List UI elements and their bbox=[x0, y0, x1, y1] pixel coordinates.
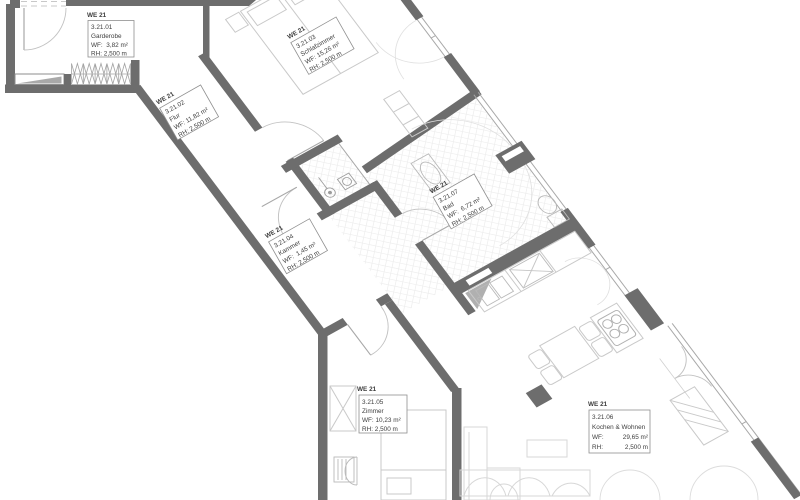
svg-text:WF: 3,82 m²: WF: 3,82 m² bbox=[91, 42, 128, 49]
svg-text:29,65 m²: 29,65 m² bbox=[623, 434, 648, 441]
svg-text:Kochen & Wohnen: Kochen & Wohnen bbox=[592, 424, 646, 431]
svg-text:Garderobe: Garderobe bbox=[91, 33, 122, 40]
svg-text:RH: 2,500 m: RH: 2,500 m bbox=[362, 426, 398, 433]
svg-text:3.21.06: 3.21.06 bbox=[592, 414, 614, 421]
svg-text:3.21.05: 3.21.05 bbox=[362, 399, 384, 406]
svg-text:WE 21: WE 21 bbox=[357, 386, 377, 393]
svg-text:RH:: RH: bbox=[592, 444, 603, 451]
svg-text:WE 21: WE 21 bbox=[87, 12, 107, 19]
svg-text:Zimmer: Zimmer bbox=[362, 408, 385, 415]
svg-text:RH: 2,500 m: RH: 2,500 m bbox=[91, 51, 127, 58]
svg-text:3.21.01: 3.21.01 bbox=[91, 24, 113, 31]
svg-text:2,500 m: 2,500 m bbox=[625, 444, 648, 451]
svg-text:WE 21: WE 21 bbox=[588, 401, 608, 408]
svg-text:WF: 10,23 m²: WF: 10,23 m² bbox=[362, 417, 401, 424]
svg-text:WF:: WF: bbox=[592, 434, 604, 441]
